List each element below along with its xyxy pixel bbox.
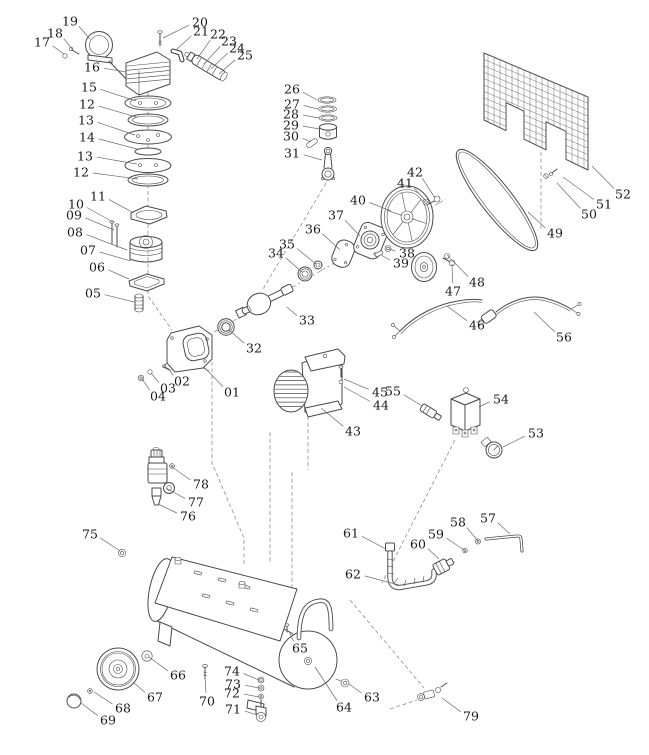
part-label: 67 xyxy=(147,689,163,704)
part-label: 12 xyxy=(73,164,89,179)
leader-line xyxy=(79,26,90,39)
part-label: 61 xyxy=(343,525,359,540)
part-label: 59 xyxy=(428,526,444,541)
part-piston xyxy=(320,124,337,139)
leader-line xyxy=(344,387,370,402)
part-piston-pin xyxy=(306,138,319,149)
part-inlet-elbow xyxy=(173,51,182,60)
part-filter-screw xyxy=(72,50,79,54)
leader-line xyxy=(100,538,120,551)
leader-line xyxy=(245,685,259,688)
part-label: 04 xyxy=(150,388,166,403)
leader-line xyxy=(349,684,362,693)
part-label: 74 xyxy=(224,663,240,678)
part-pipe-washer xyxy=(463,548,468,553)
part-label: 75 xyxy=(82,526,98,541)
part-label: 21 xyxy=(193,23,209,38)
part-label: 56 xyxy=(556,329,572,344)
leader-line xyxy=(205,676,206,693)
part-regulator-nut xyxy=(170,464,175,469)
leader-line xyxy=(452,264,453,283)
part-crankcase-fasteners xyxy=(138,365,170,381)
part-label: 65 xyxy=(292,640,308,655)
part-label: 79 xyxy=(463,708,479,723)
part-label: 69 xyxy=(100,712,116,727)
part-label: 62 xyxy=(345,566,361,581)
part-label: 53 xyxy=(528,425,544,440)
part-label: 43 xyxy=(345,423,361,438)
leader-line xyxy=(133,682,145,693)
leader-line xyxy=(229,330,244,343)
part-label: 48 xyxy=(469,274,485,289)
part-label: 63 xyxy=(364,689,380,704)
part-label: 52 xyxy=(615,186,631,201)
part-label: 50 xyxy=(581,206,597,221)
leader-line xyxy=(176,36,191,50)
leader-line xyxy=(243,674,259,681)
leader-line xyxy=(303,92,317,100)
leader-line xyxy=(365,576,399,585)
part-inlet-bolt xyxy=(158,31,162,46)
leader-line xyxy=(104,68,126,72)
part-label: 76 xyxy=(180,508,196,523)
part-label: 01 xyxy=(224,384,240,399)
part-label: 19 xyxy=(62,13,78,28)
leader-line xyxy=(479,402,490,407)
part-head-gasket xyxy=(131,206,167,224)
leader-line xyxy=(81,703,98,716)
part-label: 35 xyxy=(279,236,295,251)
leader-line xyxy=(287,307,297,316)
leader-line xyxy=(151,373,159,383)
part-label: 40 xyxy=(350,192,366,207)
part-label: 37 xyxy=(328,207,344,222)
leader-line xyxy=(446,538,464,550)
part-label: 78 xyxy=(193,476,209,491)
part-connecting-rod xyxy=(321,147,334,180)
part-cylinder-head xyxy=(126,52,170,95)
part-label: 12 xyxy=(79,96,95,111)
part-axle-pin xyxy=(88,689,93,694)
part-crank-nut xyxy=(314,261,322,269)
leader-line xyxy=(592,166,614,189)
part-label: 49 xyxy=(547,225,563,240)
leader-line xyxy=(197,40,210,59)
part-pressure-switch xyxy=(451,388,480,438)
part-belt-guard xyxy=(484,53,588,170)
leader-line xyxy=(447,306,467,321)
leader-line xyxy=(286,258,302,272)
part-v-belt xyxy=(446,141,548,259)
part-hub-cap xyxy=(67,694,81,708)
leader-line xyxy=(109,199,132,212)
leader-line xyxy=(467,528,478,542)
leader-line xyxy=(442,698,461,712)
leader-line xyxy=(345,220,360,236)
leader-line xyxy=(204,367,223,387)
leader-line xyxy=(105,295,134,302)
part-pulley-bolt xyxy=(443,254,455,266)
leader-line xyxy=(163,25,189,38)
part-label: 60 xyxy=(410,536,426,551)
leader-line xyxy=(101,89,137,101)
leader-line xyxy=(85,218,114,230)
part-label: 42 xyxy=(407,164,423,179)
part-base-gasket xyxy=(129,274,164,291)
part-wheel xyxy=(97,648,139,690)
part-label: 70 xyxy=(199,693,215,708)
part-flywheel-washer xyxy=(423,199,429,205)
part-drain-plug xyxy=(336,679,349,687)
part-label: 68 xyxy=(115,700,131,715)
part-power-cord xyxy=(475,297,581,328)
part-wheel-washer xyxy=(142,651,152,661)
part-label: 71 xyxy=(225,701,241,716)
part-pressure-gauge xyxy=(481,437,502,458)
leader-line xyxy=(323,234,341,250)
part-label: 15 xyxy=(81,79,97,94)
part-label: 13 xyxy=(78,112,94,127)
leader-line xyxy=(219,60,235,74)
part-label: 39 xyxy=(393,255,409,270)
part-filter-washer xyxy=(63,54,67,58)
exploded-parts-diagram: 0102030405060708091011121314131215161718… xyxy=(0,0,649,755)
part-label: 14 xyxy=(79,129,95,144)
part-pipe-nut xyxy=(475,539,480,544)
part-regulator xyxy=(148,448,175,506)
part-tank-plate xyxy=(155,557,297,641)
leader-line xyxy=(297,249,316,265)
part-label: 58 xyxy=(450,514,466,529)
part-label: 10 xyxy=(68,196,84,211)
part-valve-plate-stack xyxy=(125,96,172,186)
part-label: 47 xyxy=(445,283,461,298)
part-piston-rings xyxy=(318,97,337,121)
leader-line xyxy=(303,126,320,129)
leader-line xyxy=(362,536,386,549)
part-guard-screws xyxy=(544,169,557,178)
part-drain-cock xyxy=(418,683,447,700)
leader-line xyxy=(503,436,525,447)
part-handle-grip xyxy=(183,49,229,82)
leader-line xyxy=(98,122,136,135)
leader-line xyxy=(404,395,422,406)
part-main-bearing-rear xyxy=(298,267,312,281)
part-label: 25 xyxy=(237,47,253,62)
leader-line xyxy=(172,467,191,480)
part-intake-tube xyxy=(135,294,143,312)
leader-line xyxy=(528,212,546,228)
leader-line xyxy=(93,173,138,179)
part-caster-assembly xyxy=(256,677,266,722)
part-label: 06 xyxy=(89,259,105,274)
leader-line xyxy=(304,155,322,160)
tank-leg xyxy=(158,622,172,646)
leader-line xyxy=(149,657,168,671)
leader-line xyxy=(64,39,73,51)
part-label: 32 xyxy=(246,340,262,355)
leader-line xyxy=(244,694,259,697)
leader-line xyxy=(428,549,439,559)
leader-line xyxy=(53,46,65,54)
leader-line xyxy=(204,46,220,64)
part-label: 31 xyxy=(284,145,300,160)
part-label: 33 xyxy=(299,312,315,327)
part-bearing-cover-gasket xyxy=(329,238,357,270)
part-crankshaft xyxy=(233,278,297,324)
leader-line xyxy=(158,504,177,513)
part-motor-pulley xyxy=(412,253,437,282)
part-head-bolts xyxy=(110,221,119,247)
part-label: 13 xyxy=(77,148,93,163)
part-label: 54 xyxy=(493,391,509,406)
leader-line xyxy=(94,692,113,704)
diagram-canvas: 0102030405060708091011121314131215161718… xyxy=(0,0,649,755)
part-cylinder xyxy=(130,236,162,263)
part-label: 16 xyxy=(84,59,100,74)
leader-line xyxy=(303,138,312,142)
leader-line xyxy=(534,312,555,332)
leader-line xyxy=(563,177,594,200)
leader-line xyxy=(381,255,390,260)
part-flywheel xyxy=(381,186,433,248)
leader-line xyxy=(108,270,129,279)
leader-line xyxy=(304,106,318,110)
leader-line xyxy=(447,255,468,277)
leader-line xyxy=(498,523,510,534)
part-label: 36 xyxy=(305,221,321,236)
part-check-valve xyxy=(432,556,455,576)
part-check-valve-fitting xyxy=(419,403,442,421)
part-label: 44 xyxy=(373,397,389,412)
part-label: 77 xyxy=(188,494,204,509)
leader-line xyxy=(344,379,369,389)
part-label: 57 xyxy=(480,510,496,525)
part-outlet-pipe xyxy=(486,536,522,551)
part-label: 73 xyxy=(225,676,241,691)
part-label: 46 xyxy=(469,317,485,332)
part-label: 51 xyxy=(596,196,612,211)
part-label: 18 xyxy=(47,25,63,40)
part-label: 11 xyxy=(90,188,106,203)
part-label: 30 xyxy=(283,128,299,143)
leader-line xyxy=(142,379,150,390)
part-label: 66 xyxy=(170,667,186,682)
part-label: 55 xyxy=(385,383,401,398)
part-label: 08 xyxy=(67,224,83,239)
part-crankcase xyxy=(163,326,212,372)
part-motor xyxy=(273,349,345,417)
leader-line xyxy=(303,115,319,118)
part-label: 07 xyxy=(80,242,96,257)
part-label: 26 xyxy=(284,81,300,96)
leader-line xyxy=(245,711,257,715)
part-label: 02 xyxy=(174,373,190,388)
part-label: 05 xyxy=(85,285,101,300)
part-label: 64 xyxy=(336,699,352,714)
leader-line xyxy=(211,53,228,69)
